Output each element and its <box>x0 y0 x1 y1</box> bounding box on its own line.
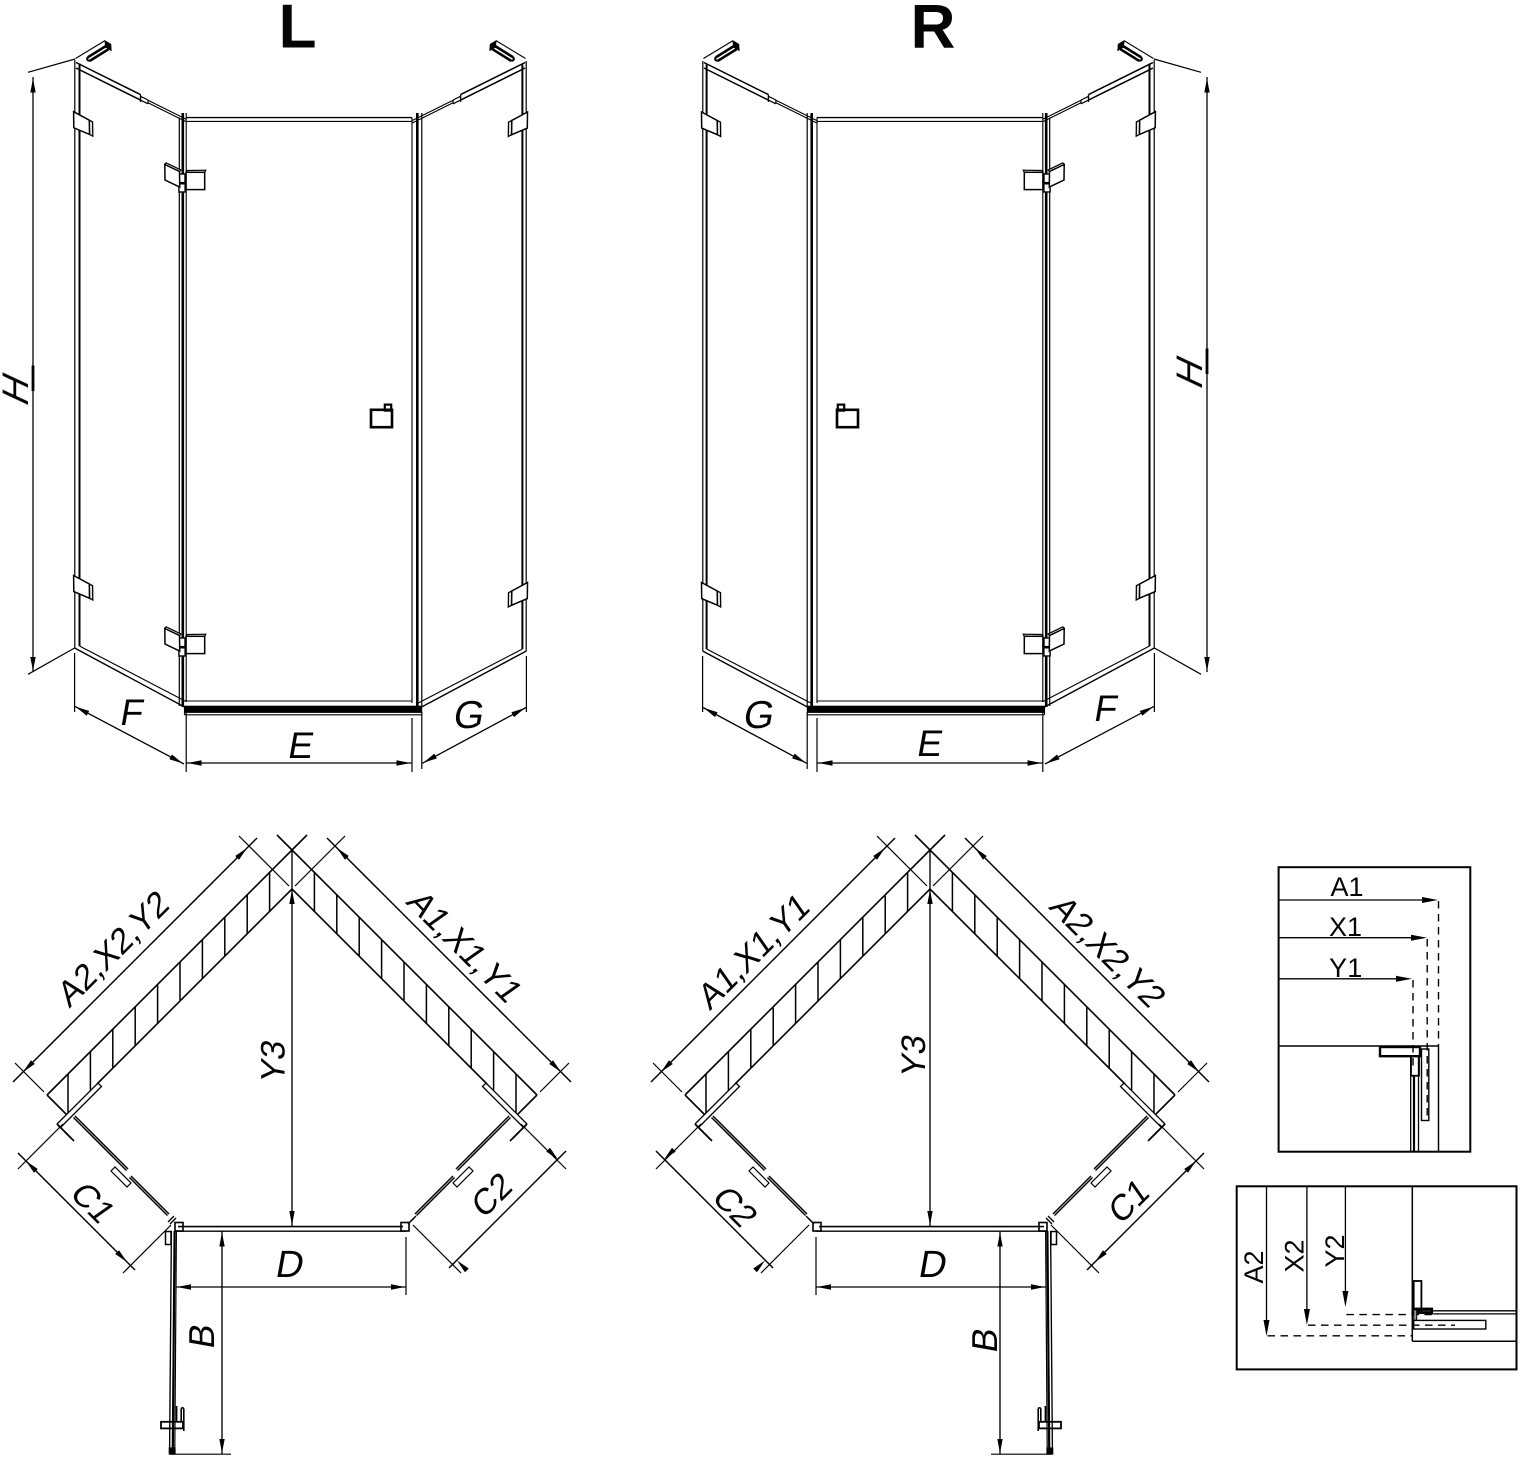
svg-text:L: L <box>279 0 317 62</box>
svg-text:R: R <box>911 0 956 62</box>
svg-text:X2: X2 <box>1280 1239 1310 1272</box>
svg-text:A1: A1 <box>1330 872 1363 902</box>
svg-text:X1: X1 <box>1329 912 1362 942</box>
svg-text:Y2: Y2 <box>1320 1234 1350 1267</box>
svg-text:Y1: Y1 <box>1329 953 1362 983</box>
svg-text:Y3: Y3 <box>895 1031 933 1079</box>
svg-text:A2: A2 <box>1239 1250 1269 1283</box>
svg-text:Y3: Y3 <box>255 1037 293 1085</box>
